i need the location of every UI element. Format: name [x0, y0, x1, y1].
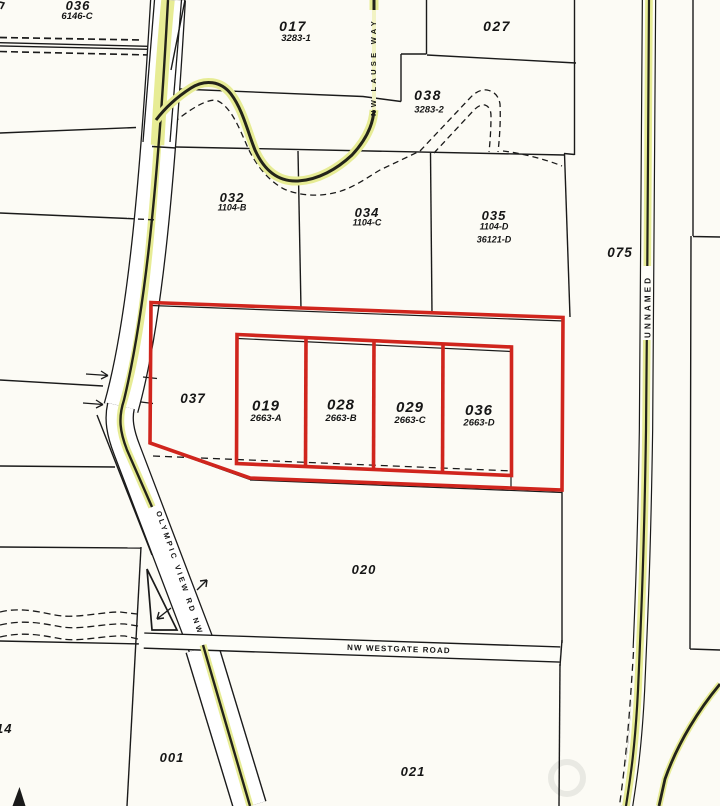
svg-text:020: 020: [352, 562, 377, 577]
svg-text:038: 038: [414, 87, 442, 103]
svg-text:017: 017: [279, 18, 307, 34]
svg-text:1104-D: 1104-D: [480, 222, 509, 232]
svg-text:2663-C: 2663-C: [393, 415, 425, 426]
svg-text:021: 021: [401, 764, 426, 779]
svg-text:001: 001: [160, 750, 185, 765]
svg-text:028: 028: [327, 397, 355, 414]
svg-text:3283-1: 3283-1: [281, 33, 311, 44]
svg-text:027: 027: [483, 18, 511, 34]
svg-text:UNNAMED: UNNAMED: [644, 275, 653, 338]
svg-text:2663-B: 2663-B: [324, 413, 356, 424]
svg-text:037: 037: [180, 391, 206, 406]
svg-text:075: 075: [607, 245, 633, 260]
svg-text:1104-B: 1104-B: [218, 203, 247, 213]
svg-text:1104-C: 1104-C: [353, 218, 382, 228]
svg-text:2663-A: 2663-A: [249, 413, 281, 424]
svg-text:2663-D: 2663-D: [462, 418, 494, 429]
svg-text:029: 029: [396, 399, 424, 416]
svg-text:3283-2: 3283-2: [414, 105, 444, 116]
svg-text:036: 036: [465, 402, 493, 419]
svg-text:019: 019: [252, 398, 280, 415]
svg-text:36121-D: 36121-D: [477, 235, 512, 245]
svg-text:14: 14: [0, 721, 12, 736]
svg-text:6146-C: 6146-C: [61, 11, 92, 22]
svg-text:NW LAUSE WAY: NW LAUSE WAY: [369, 18, 378, 116]
